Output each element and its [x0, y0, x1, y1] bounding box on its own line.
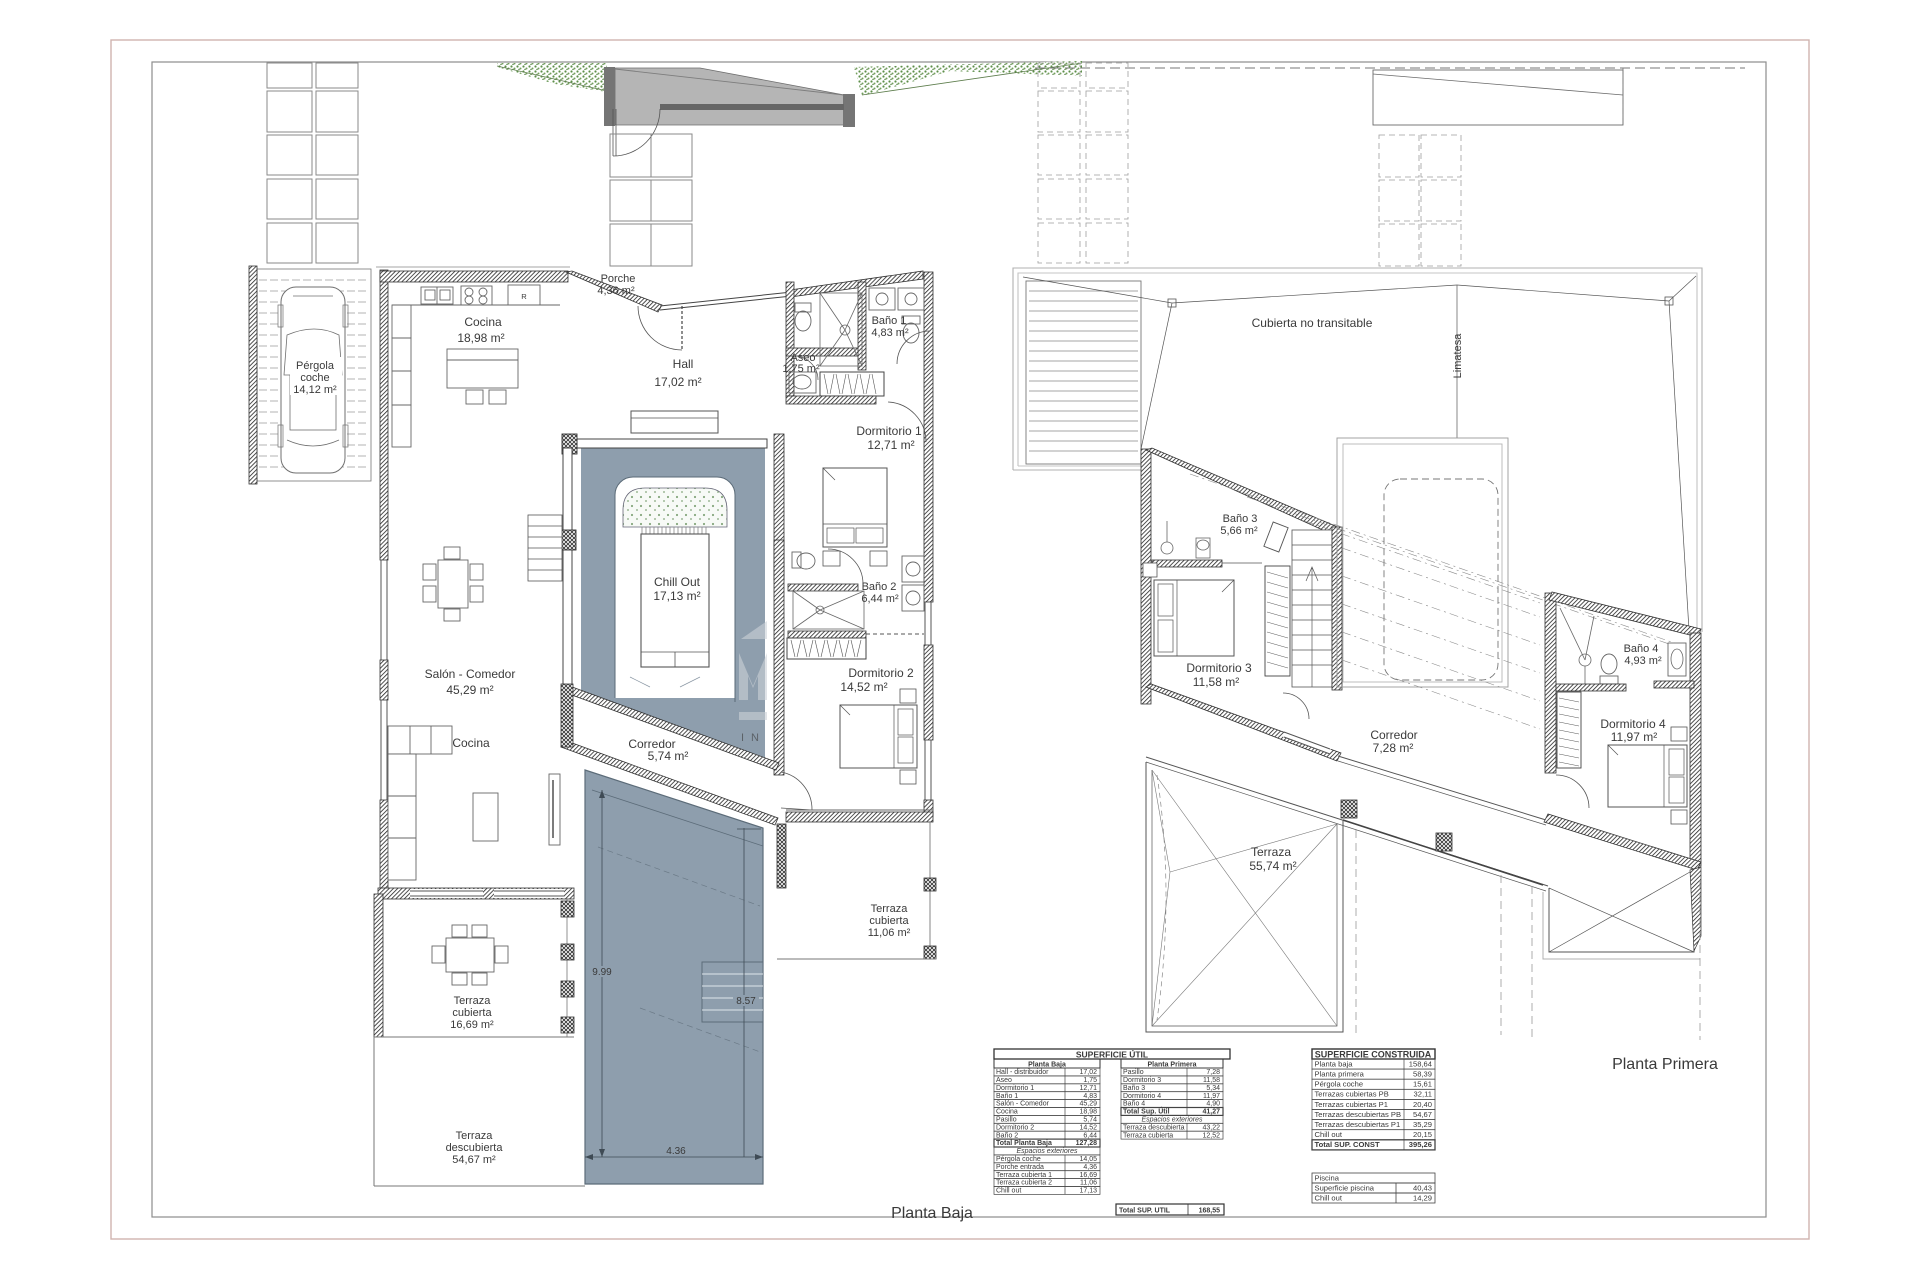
svg-text:Cocina: Cocina: [452, 736, 490, 750]
svg-text:Aseo: Aseo: [996, 1077, 1012, 1084]
svg-text:Baño 1: Baño 1: [996, 1093, 1018, 1100]
svg-text:Dormitorio 4: Dormitorio 4: [1600, 717, 1666, 731]
svg-text:45,29: 45,29: [1079, 1101, 1097, 1108]
svg-text:IN: IN: [741, 732, 766, 744]
svg-text:Hall: Hall: [673, 357, 694, 371]
svg-text:Baño 2: Baño 2: [862, 581, 897, 593]
svg-text:Planta primera: Planta primera: [1315, 1070, 1365, 1079]
svg-text:14,12 m²: 14,12 m²: [293, 384, 337, 396]
svg-text:54,67: 54,67: [1413, 1110, 1432, 1119]
svg-text:7,28 m²: 7,28 m²: [1373, 741, 1414, 755]
svg-text:11,97 m²: 11,97 m²: [1611, 730, 1657, 744]
svg-text:6,44: 6,44: [1083, 1132, 1097, 1139]
svg-text:SUPERFICIE ÚTIL: SUPERFICIE ÚTIL: [1076, 1049, 1148, 1060]
svg-text:18,98: 18,98: [1079, 1109, 1097, 1116]
svg-text:14,52 m²: 14,52 m²: [840, 680, 887, 694]
svg-text:Superficie piscina: Superficie piscina: [1315, 1183, 1375, 1192]
svg-text:17,02 m²: 17,02 m²: [654, 375, 701, 389]
svg-text:395,26: 395,26: [1409, 1140, 1432, 1149]
svg-text:4,83 m²: 4,83 m²: [871, 327, 909, 339]
svg-text:Baño 3: Baño 3: [1123, 1085, 1145, 1092]
svg-text:17,13: 17,13: [1079, 1188, 1097, 1195]
svg-text:11,97: 11,97: [1203, 1093, 1220, 1100]
svg-text:9.99: 9.99: [592, 967, 612, 978]
svg-text:4,36: 4,36: [1083, 1164, 1097, 1171]
svg-text:Dormitorio 2: Dormitorio 2: [996, 1124, 1034, 1131]
svg-text:Pasillo: Pasillo: [996, 1117, 1017, 1124]
svg-text:5,66 m²: 5,66 m²: [1220, 525, 1258, 537]
svg-text:Chill out: Chill out: [996, 1188, 1021, 1195]
svg-text:4,90: 4,90: [1206, 1101, 1220, 1108]
svg-text:12,52: 12,52: [1202, 1132, 1220, 1139]
svg-text:R: R: [521, 292, 527, 301]
svg-text:Terraza descubierta: Terraza descubierta: [1123, 1124, 1185, 1131]
svg-text:5,74: 5,74: [1083, 1117, 1097, 1124]
svg-text:Dormitorio 1: Dormitorio 1: [856, 424, 922, 438]
svg-text:cubierta: cubierta: [869, 915, 909, 927]
svg-text:16,69: 16,69: [1079, 1172, 1097, 1179]
svg-text:158,64: 158,64: [1409, 1059, 1432, 1068]
svg-text:7,28: 7,28: [1206, 1069, 1220, 1076]
svg-text:17,02: 17,02: [1079, 1069, 1097, 1076]
svg-text:Terrazas cubiertas P1: Terrazas cubiertas P1: [1315, 1100, 1388, 1109]
svg-text:Pasillo: Pasillo: [1123, 1069, 1144, 1076]
svg-text:SUPERFICIE CONSTRUIDA: SUPERFICIE CONSTRUIDA: [1315, 1050, 1432, 1060]
svg-text:Terrazas descubiertas PB: Terrazas descubiertas PB: [1315, 1110, 1402, 1119]
svg-text:Salón - Comedor: Salón - Comedor: [425, 667, 516, 681]
svg-text:coche: coche: [300, 372, 329, 384]
svg-text:Pérgola: Pérgola: [296, 360, 335, 372]
svg-text:Baño 1: Baño 1: [872, 315, 907, 327]
svg-text:14,52: 14,52: [1079, 1124, 1097, 1131]
svg-text:Terraza: Terraza: [1251, 845, 1291, 859]
svg-text:Dormitorio 1: Dormitorio 1: [996, 1085, 1034, 1092]
svg-text:Total SUP. CONST: Total SUP. CONST: [1315, 1140, 1380, 1149]
svg-text:Planta Baja: Planta Baja: [1028, 1062, 1066, 1069]
svg-text:Baño 4: Baño 4: [1624, 643, 1659, 655]
svg-text:32,11: 32,11: [1414, 1090, 1432, 1099]
svg-text:Terraza: Terraza: [456, 1130, 494, 1142]
svg-text:Terrazas descubiertas P1: Terrazas descubiertas P1: [1315, 1120, 1401, 1129]
svg-text:1,75: 1,75: [1083, 1077, 1097, 1084]
svg-text:Baño 3: Baño 3: [1223, 513, 1258, 525]
svg-text:6,44 m²: 6,44 m²: [861, 593, 899, 605]
svg-text:11,58 m²: 11,58 m²: [1193, 675, 1239, 689]
svg-text:16,69 m²: 16,69 m²: [450, 1019, 494, 1031]
svg-text:Chill Out: Chill Out: [654, 575, 701, 589]
svg-text:58,39: 58,39: [1413, 1070, 1432, 1079]
svg-text:Baño 2: Baño 2: [996, 1132, 1018, 1139]
svg-text:Dormitorio 4: Dormitorio 4: [1123, 1093, 1161, 1100]
svg-text:Chill out: Chill out: [1315, 1130, 1343, 1139]
svg-text:Terraza cubierta 1: Terraza cubierta 1: [996, 1172, 1052, 1179]
svg-text:Planta Primera: Planta Primera: [1612, 1056, 1718, 1073]
svg-text:Terraza: Terraza: [871, 903, 909, 915]
svg-text:Planta Primera: Planta Primera: [1147, 1062, 1196, 1069]
svg-text:20,15: 20,15: [1413, 1130, 1432, 1139]
svg-text:descubierta: descubierta: [446, 1142, 504, 1154]
svg-text:Porche: Porche: [601, 273, 636, 285]
svg-text:127,28: 127,28: [1076, 1140, 1098, 1147]
svg-text:Pérgola coche: Pérgola coche: [996, 1156, 1041, 1163]
svg-text:Limatesa: Limatesa: [1452, 333, 1464, 379]
svg-text:Salón - Comedor: Salón - Comedor: [996, 1101, 1050, 1108]
svg-text:Pérgola coche: Pérgola coche: [1315, 1080, 1364, 1089]
svg-text:4,83: 4,83: [1083, 1093, 1097, 1100]
svg-text:11,58: 11,58: [1203, 1077, 1220, 1084]
svg-text:Espacios exteriores: Espacios exteriores: [1141, 1117, 1203, 1124]
svg-text:40,43: 40,43: [1413, 1183, 1432, 1192]
svg-text:Terraza: Terraza: [454, 995, 492, 1007]
svg-text:Cocina: Cocina: [996, 1109, 1018, 1116]
svg-text:Porche entrada: Porche entrada: [996, 1164, 1044, 1171]
svg-text:cubierta: cubierta: [452, 1007, 492, 1019]
svg-text:Baño 4: Baño 4: [1123, 1101, 1145, 1108]
svg-text:Hall - distribuidor: Hall - distribuidor: [996, 1069, 1049, 1076]
svg-text:Dormitorio 2: Dormitorio 2: [848, 666, 914, 680]
svg-text:54,67 m²: 54,67 m²: [452, 1154, 496, 1166]
svg-text:168,55: 168,55: [1199, 1208, 1221, 1215]
svg-text:14,29: 14,29: [1413, 1193, 1432, 1202]
svg-text:Dormitorio 3: Dormitorio 3: [1123, 1077, 1161, 1084]
svg-text:4,93 m²: 4,93 m²: [1624, 655, 1662, 667]
svg-text:Planta Baja: Planta Baja: [891, 1205, 973, 1222]
svg-text:55,74 m²: 55,74 m²: [1249, 859, 1296, 873]
svg-text:15,61: 15,61: [1413, 1080, 1432, 1089]
svg-text:35,29: 35,29: [1413, 1120, 1432, 1129]
svg-text:Terrazas cubiertas PB: Terrazas cubiertas PB: [1315, 1090, 1389, 1099]
svg-text:43,22: 43,22: [1202, 1124, 1220, 1131]
svg-text:Espacios exteriores: Espacios exteriores: [1016, 1148, 1078, 1155]
svg-text:18,98 m²: 18,98 m²: [457, 331, 504, 345]
svg-text:17,13 m²: 17,13 m²: [653, 589, 700, 603]
svg-text:20,40: 20,40: [1413, 1100, 1432, 1109]
svg-text:11,06 m²: 11,06 m²: [868, 927, 911, 939]
svg-text:Terraza cubierta 2: Terraza cubierta 2: [996, 1180, 1052, 1187]
svg-text:41,27: 41,27: [1202, 1109, 1220, 1116]
svg-text:Cubierta no transitable: Cubierta no transitable: [1252, 316, 1373, 330]
svg-text:1,75 m²: 1,75 m²: [782, 363, 820, 375]
svg-text:Planta baja: Planta baja: [1315, 1059, 1354, 1068]
svg-text:Chill out: Chill out: [1315, 1193, 1343, 1202]
svg-text:4,36 m²: 4,36 m²: [597, 285, 635, 297]
svg-text:Total Sup. Útil: Total Sup. Útil: [1123, 1107, 1170, 1116]
svg-text:8.57: 8.57: [736, 996, 756, 1007]
svg-text:Corredor: Corredor: [1370, 728, 1417, 742]
svg-text:12,71: 12,71: [1079, 1085, 1097, 1092]
svg-text:12,71 m²: 12,71 m²: [867, 438, 914, 452]
svg-text:Total Planta Baja: Total Planta Baja: [996, 1140, 1052, 1147]
svg-text:Dormitorio 3: Dormitorio 3: [1186, 661, 1252, 675]
svg-text:5,34: 5,34: [1206, 1085, 1220, 1092]
svg-text:Piscina: Piscina: [1315, 1173, 1340, 1182]
svg-text:4.36: 4.36: [666, 1146, 686, 1157]
svg-text:45,29 m²: 45,29 m²: [446, 683, 493, 697]
svg-text:Total SUP. UTIL: Total SUP. UTIL: [1119, 1208, 1171, 1215]
svg-text:Cocina: Cocina: [464, 315, 502, 329]
svg-text:Terraza cubierta: Terraza cubierta: [1123, 1132, 1173, 1139]
svg-text:5,74 m²: 5,74 m²: [648, 749, 689, 763]
svg-text:11,06: 11,06: [1080, 1180, 1097, 1187]
svg-text:14,05: 14,05: [1079, 1156, 1097, 1163]
